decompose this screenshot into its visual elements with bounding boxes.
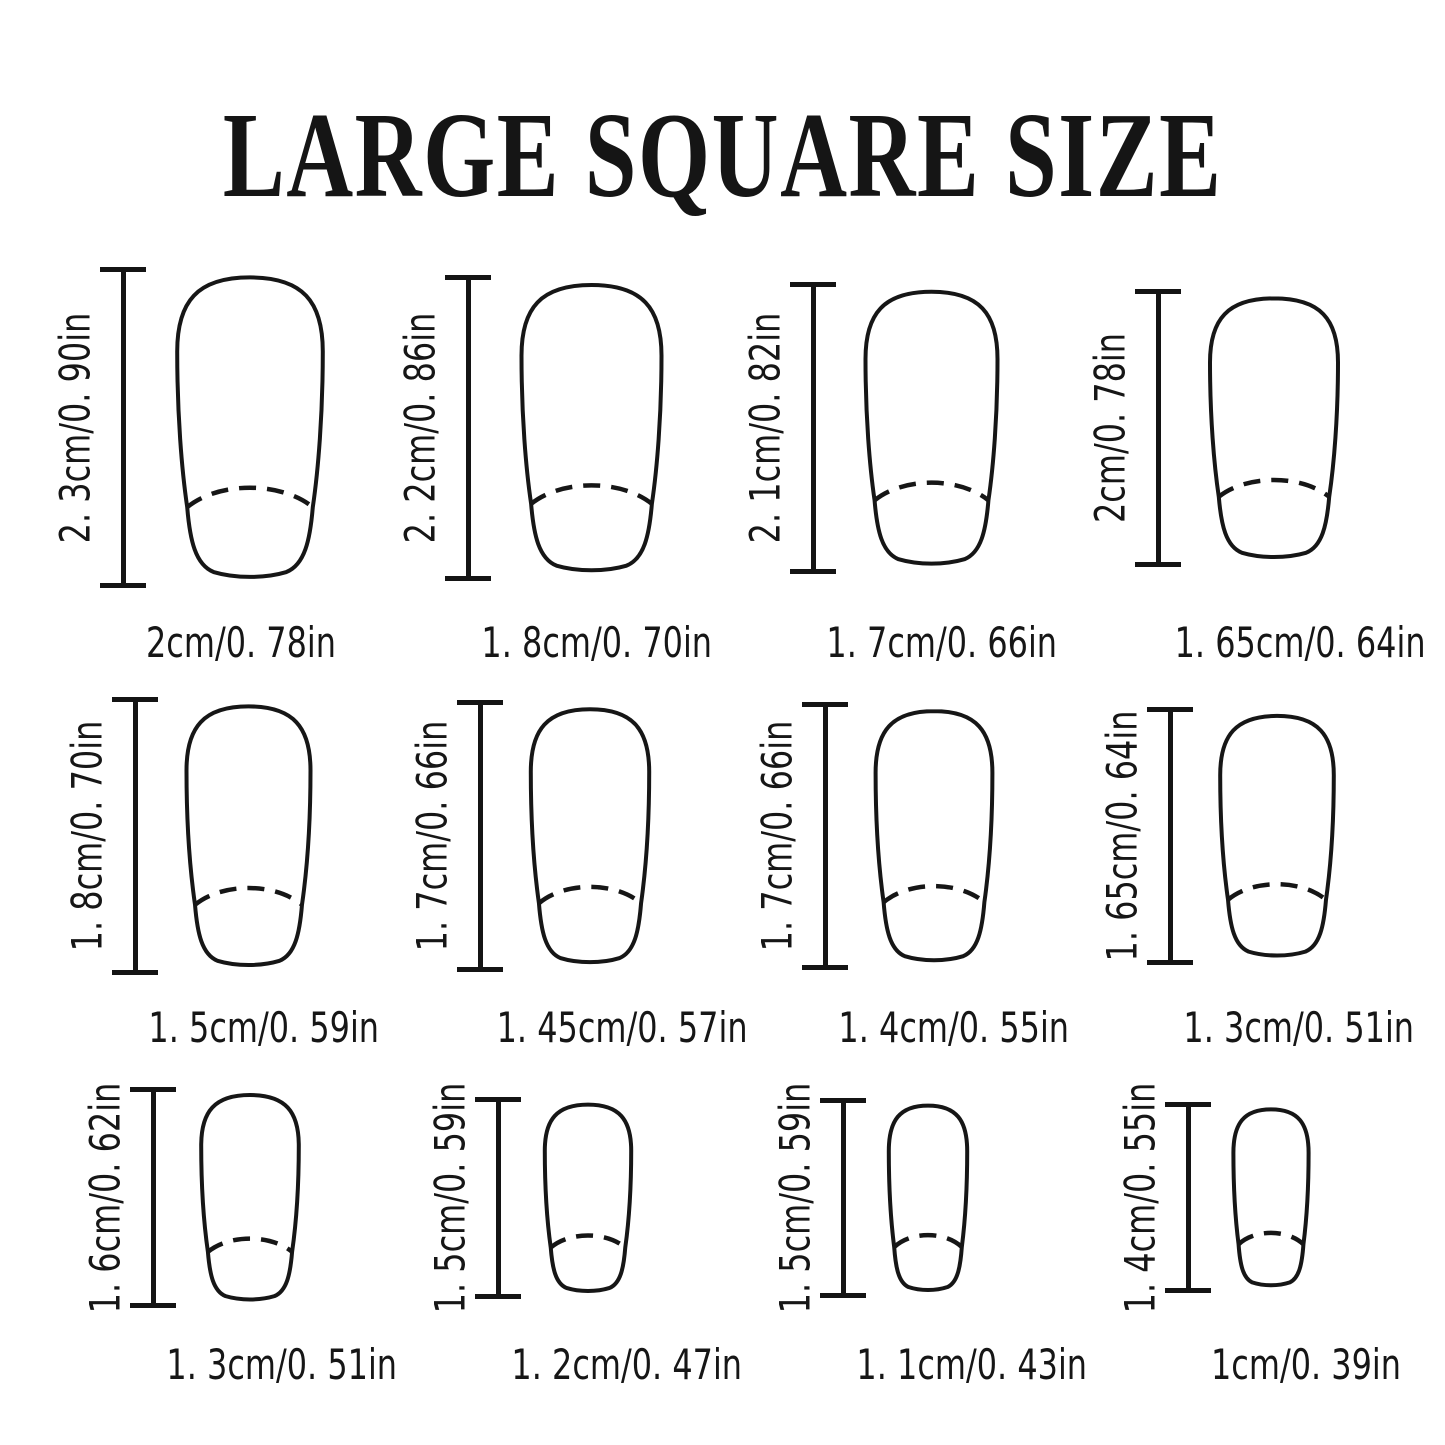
height-label-box: 1. 7cm/0. 66in [752,702,802,970]
height-label: 1. 6cm/0. 62in [81,1082,130,1313]
smile-line-path [551,1235,626,1247]
nail-shape [879,1101,977,1295]
size-cell-10: 1. 5cm/0. 59in 1. 2cm/0. 47in [415,1087,760,1308]
nail-outline-path [1233,1109,1308,1285]
nail-outline-path [187,706,311,965]
width-label: 1. 3cm/0. 51in [1147,1003,1429,1052]
nail-outline-path [1220,716,1334,956]
nail-shape [1206,710,1348,962]
nail-shape [504,278,679,578]
size-cell-7: 1. 7cm/0. 66in 1. 4cm/0. 55in [742,697,1087,975]
height-label: 2. 3cm/0. 90in [51,312,100,543]
measurement-line [1147,707,1193,965]
nail-shape [1224,1105,1318,1290]
height-label-box: 2cm/0. 78in [1085,289,1135,567]
height-label-box: 1. 65cm/0. 64in [1097,707,1147,965]
size-cell-9: 1. 6cm/0. 62in 1. 3cm/0. 51in [70,1087,415,1308]
smile-line-path [539,887,641,903]
nail-outline-path [522,285,662,570]
size-cell-5: 1. 8cm/0. 70in 1. 5cm/0. 59in [52,697,397,975]
width-label: 1. 65cm/0. 64in [1135,618,1417,667]
size-row-3: 1. 6cm/0. 62in 1. 3cm/0. 51in 1. 5cm/0. … [0,1087,1445,1308]
nail-outline-path [876,711,993,960]
measurement-line [457,700,503,972]
width-label: 2cm/0. 78in [100,618,382,667]
size-cell-1: 2. 3cm/0. 90in 2cm/0. 78in [40,267,385,588]
size-cell-3: 2. 1cm/0. 82in 1. 7cm/0. 66in [730,267,1075,588]
height-label-box: 1. 6cm/0. 62in [80,1087,130,1308]
width-label: 1. 8cm/0. 70in [445,618,727,667]
height-label: 2. 1cm/0. 82in [741,312,790,543]
size-cell-8: 1. 65cm/0. 64in 1. 3cm/0. 51in [1087,697,1432,975]
height-label: 1. 7cm/0. 66in [408,721,457,952]
width-label: 1cm/0. 39in [1165,1340,1445,1389]
size-cell-11: 1. 5cm/0. 59in 1. 1cm/0. 43in [760,1087,1105,1308]
measurement-line [802,702,848,970]
nail-shape [849,285,1014,571]
size-cell-4: 2cm/0. 78in 1. 65cm/0. 64in [1075,267,1420,588]
measurement-line [820,1098,866,1298]
size-cell-2: 2. 2cm/0. 86in 1. 8cm/0. 70in [385,267,730,588]
nail-shape [189,1090,311,1305]
measurement-line [112,697,158,975]
smile-line-path [875,482,989,500]
nail-shape [534,1100,642,1296]
size-cell-12: 1. 4cm/0. 55in 1cm/0. 39in [1105,1087,1445,1308]
width-label: 1. 7cm/0. 66in [790,618,1072,667]
height-label-box: 1. 5cm/0. 59in [770,1098,820,1298]
height-label: 1. 7cm/0. 66in [753,721,802,952]
height-label-box: 2. 3cm/0. 90in [50,267,100,588]
height-label: 2cm/0. 78in [1086,332,1135,522]
smile-line-path [884,886,985,902]
height-label-box: 2. 1cm/0. 82in [740,282,790,574]
nail-outline-path [889,1105,967,1289]
nail-outline-path [177,277,323,576]
width-label: 1. 45cm/0. 57in [457,1003,739,1052]
height-label: 1. 4cm/0. 55in [1116,1082,1165,1313]
nail-outline-path [545,1104,631,1290]
smile-line-path [1228,884,1326,900]
height-label-box: 1. 8cm/0. 70in [62,697,112,975]
smile-line-path [894,1235,962,1247]
nail-shape [516,703,664,969]
height-label: 1. 65cm/0. 64in [1098,711,1147,962]
page-header: LARGE SQUARE SIZE [0,86,1445,226]
height-label-box: 1. 4cm/0. 55in [1115,1102,1165,1293]
nail-shape [861,705,1007,967]
smile-line-path [1239,1233,1304,1244]
width-label: 1. 1cm/0. 43in [820,1340,1102,1389]
width-label: 1. 3cm/0. 51in [130,1340,412,1389]
width-label: 1. 2cm/0. 47in [475,1340,757,1389]
measurement-line [1135,289,1181,567]
smile-line-path [208,1239,292,1252]
height-label-box: 1. 7cm/0. 66in [407,700,457,972]
measurement-line [475,1097,521,1299]
height-label-box: 2. 2cm/0. 86in [395,275,445,581]
nail-shape [159,270,341,585]
size-cell-6: 1. 7cm/0. 66in 1. 45cm/0. 57in [397,697,742,975]
height-label: 1. 5cm/0. 59in [771,1082,820,1313]
smile-line-path [187,488,313,507]
size-row-1: 2. 3cm/0. 90in 2cm/0. 78in 2. 2cm/0. 86i… [0,267,1420,588]
nail-shape [1194,292,1354,564]
measurement-line [100,267,146,588]
measurement-line [1165,1102,1211,1293]
nail-outline-path [531,709,649,962]
height-label-box: 1. 5cm/0. 59in [425,1097,475,1299]
measurement-line [790,282,836,574]
nail-outline-path [866,291,998,563]
height-label: 1. 5cm/0. 59in [426,1082,475,1313]
width-label: 1. 4cm/0. 55in [802,1003,1084,1052]
size-row-2: 1. 8cm/0. 70in 1. 5cm/0. 59in 1. 7cm/0. … [0,697,1432,975]
nail-outline-path [201,1095,299,1299]
measurement-line [130,1087,176,1308]
nail-outline-path [1210,298,1338,557]
nail-shape [171,700,326,972]
smile-line-path [195,888,302,905]
width-label: 1. 5cm/0. 59in [112,1003,394,1052]
smile-line-path [1219,480,1329,497]
smile-line-path [531,485,652,504]
page-title: LARGE SQUARE SIZE [223,86,1223,226]
height-label: 2. 2cm/0. 86in [396,312,445,543]
measurement-line [445,275,491,581]
height-label: 1. 8cm/0. 70in [63,721,112,952]
